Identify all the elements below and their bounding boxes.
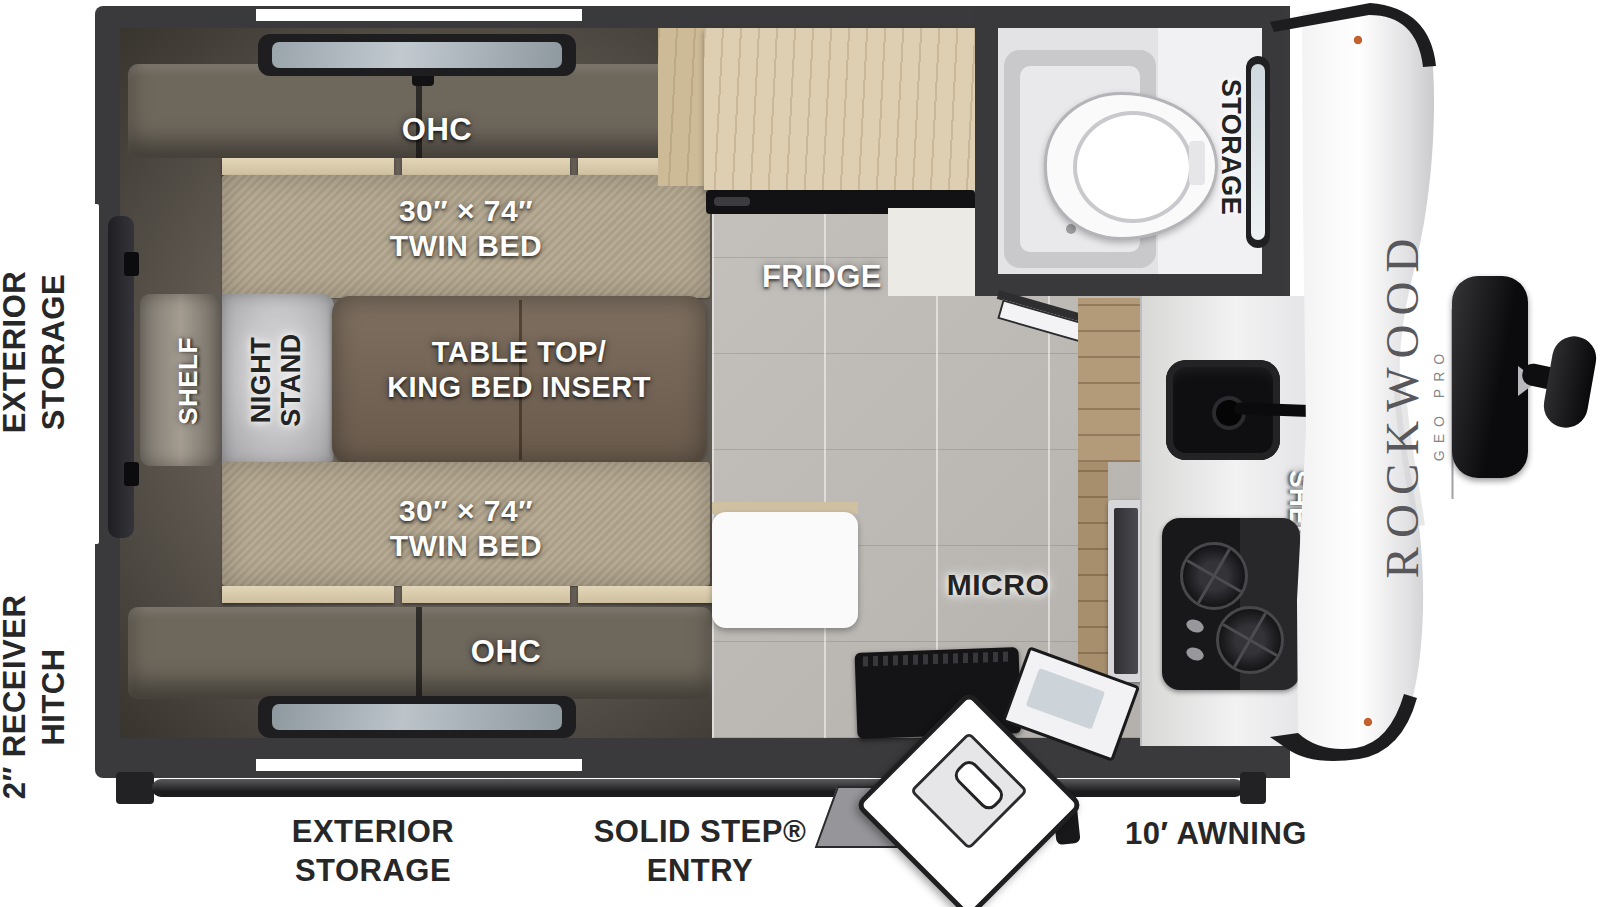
door-latch-top: [124, 252, 139, 276]
counter-by-fridge: [888, 208, 975, 296]
pantry-side-panel: [658, 28, 704, 186]
ohc-top-label: OHC: [402, 112, 472, 148]
label-exterior-storage-left: EXTERIOR STORAGE: [0, 271, 74, 433]
twin-bed-bottom-label: 30″ × 74″ TWIN BED: [390, 494, 542, 563]
bed-bottom-rail: [222, 586, 712, 603]
label-awning: 10′ AWNING: [1125, 815, 1307, 854]
night-stand-label: NIGHT STAND: [247, 333, 306, 427]
kitchen-upper-cabinet: [1078, 298, 1142, 462]
brand-name: ROCKWOOD: [1375, 169, 1429, 639]
twin-bed-top-label: 30″ × 74″ TWIN BED: [390, 194, 542, 263]
propane-cover: [1452, 276, 1528, 478]
door-side-window-strip: [256, 759, 582, 771]
door-latch-bottom: [124, 462, 139, 486]
clearance-light-bottom: [1363, 717, 1373, 727]
micro-appliance: [1108, 500, 1144, 682]
bed-top-window: [258, 34, 576, 76]
entry-bench: [712, 512, 858, 628]
brand-series: GEO PRO: [1431, 169, 1447, 639]
shelf-left-label: SHELF: [173, 337, 204, 425]
table-label: TABLE TOP/ KING BED INSERT: [387, 335, 651, 405]
awning-bracket-left: [116, 772, 154, 804]
clearance-light-top: [1353, 35, 1363, 45]
brand-logo: ROCKWOOD GEO PRO: [1375, 169, 1454, 639]
rear-window: [86, 204, 99, 544]
label-receiver-hitch: 2″ RECEIVER HITCH: [0, 595, 74, 800]
awning-bar: [152, 779, 1244, 797]
floorplan-canvas: 30″ × 74″ TWIN BED OHC SHELF NIGHT STAND…: [0, 0, 1600, 907]
micro-label: MICRO: [947, 568, 1050, 602]
ohc-bottom-label: OHC: [471, 634, 541, 670]
bed-bottom-window: [258, 696, 576, 738]
label-exterior-storage-bottom: EXTERIOR STORAGE: [292, 813, 454, 891]
fridge-label: FRIDGE: [762, 259, 882, 295]
label-solid-step-entry: SOLID STEP® ENTRY: [594, 813, 807, 891]
fridge-cabinet: [704, 28, 975, 190]
bed-bottom-backrest: [128, 607, 712, 699]
bed-top-rail: [222, 158, 712, 175]
offdoor-window-strip: [256, 9, 582, 21]
kitchen-lower-cabinet: [1078, 462, 1108, 680]
